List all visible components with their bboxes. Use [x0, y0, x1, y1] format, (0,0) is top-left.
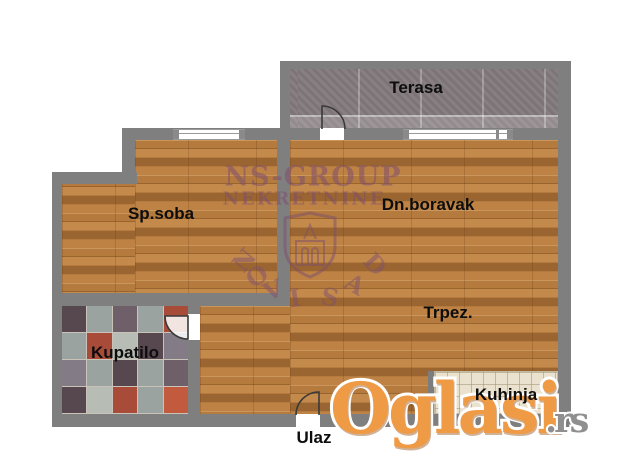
floor-plan-canvas: NS-GROUP NEKRETNINE N O V I S A D Oglasi…: [0, 0, 620, 475]
terrace-door-arc-icon: [322, 106, 345, 129]
room-label-dn-boravak: Dn.boravak: [382, 195, 475, 215]
bathroom-door-arc-icon: [165, 316, 188, 339]
room-label-terasa: Terasa: [389, 78, 443, 98]
room-label-trpez: Trpez.: [423, 303, 472, 323]
oglasi-tld-watermark: .rs .rs: [545, 403, 615, 443]
shield-emblem-icon: [282, 211, 338, 279]
entrance-door-arc-icon: [296, 392, 319, 415]
room-label-sp-soba: Sp.soba: [128, 204, 194, 224]
room-label-kuhinja: Kuhinja: [475, 385, 537, 405]
room-label-kupatilo: Kupatilo: [91, 343, 159, 363]
oglasi-tld-text: .rs: [545, 403, 586, 438]
agency-watermark-subtitle: NEKRETNINE: [223, 189, 386, 210]
room-label-ulaz: Ulaz: [297, 428, 332, 448]
